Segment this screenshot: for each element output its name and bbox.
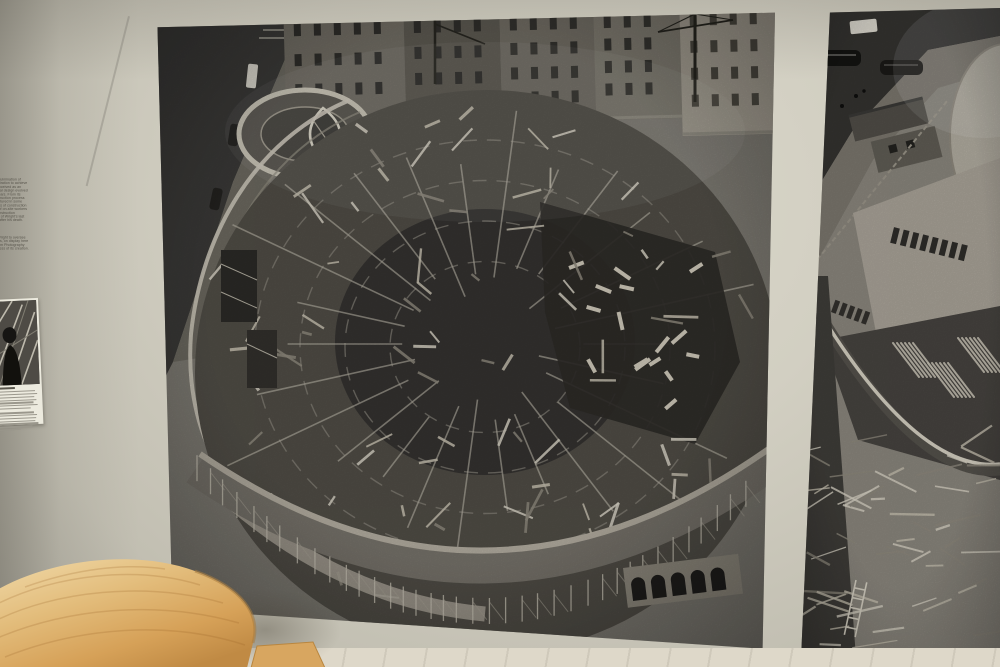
wooden-table: [0, 547, 325, 667]
label-paragraph-1: omon R. Guggenheim Museum is the culmina…: [0, 178, 74, 222]
caption-text-bar: [0, 404, 38, 407]
caption-text-bar: [0, 426, 33, 429]
table-top: [0, 559, 255, 667]
caption-text-bar: [0, 407, 31, 410]
label-line: ive, document the unprecedented process …: [0, 247, 74, 251]
caption-text-bar: [0, 422, 38, 425]
gallery-wall: omon R. Guggenheim Museum is the culmina…: [0, 0, 1000, 667]
label-line: ning on October 21, 1959, six months aft…: [0, 219, 74, 223]
film-grain: [798, 8, 1000, 658]
caption-text-bar: [0, 387, 15, 390]
caption-card-photo: [0, 300, 40, 386]
caption-card: [0, 298, 43, 426]
caption-card-text: [0, 384, 42, 435]
label-credit-lines: [0, 256, 74, 262]
right-photograph: [798, 8, 1000, 658]
wall-text-label: omon R. Guggenheim Museum is the culmina…: [0, 178, 74, 264]
wall-shadow-line: [86, 16, 130, 186]
second-table-edge: [251, 642, 325, 667]
caption-text-bar: [0, 429, 21, 431]
label-paragraph-2: ect William H. Short was selected by Wri…: [0, 236, 74, 251]
